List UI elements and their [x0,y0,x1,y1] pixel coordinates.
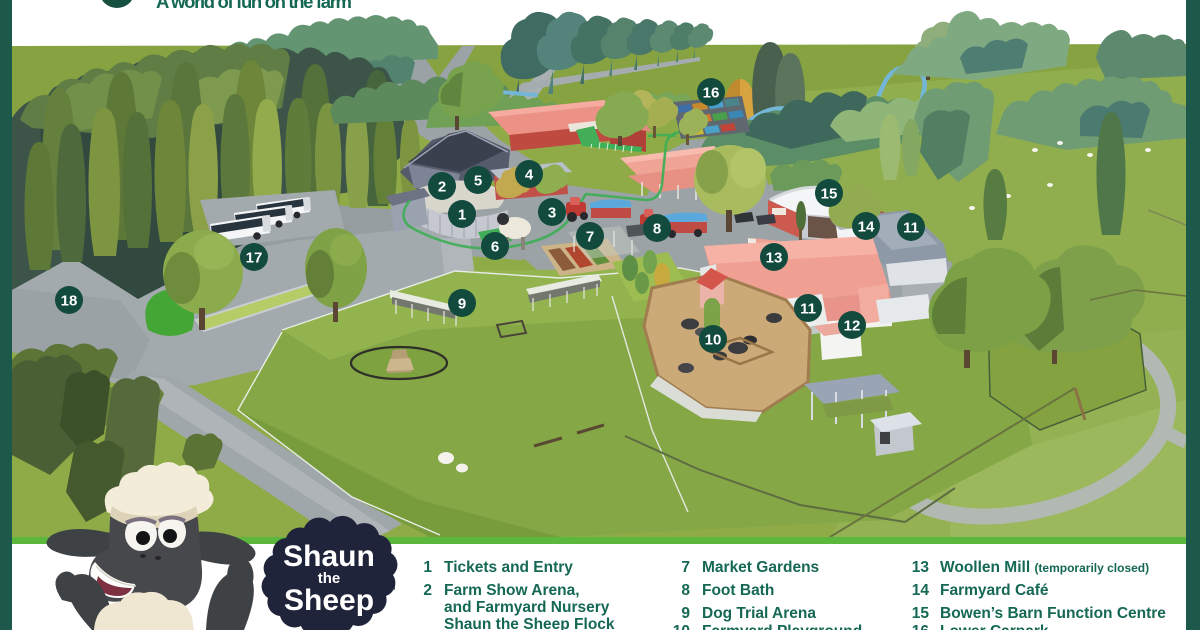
svg-text:9: 9 [681,605,690,622]
svg-text:Market Gardens: Market Gardens [702,559,819,576]
svg-text:A world of fun on the farm: A world of fun on the farm [156,0,352,12]
svg-text:Foot Bath: Foot Bath [702,582,774,599]
svg-text:8: 8 [653,221,661,238]
svg-text:10: 10 [673,623,690,630]
svg-text:10: 10 [705,332,722,349]
svg-text:Sheep: Sheep [284,584,374,617]
svg-text:Shaun the Sheep Flock: Shaun the Sheep Flock [444,616,615,630]
svg-text:9: 9 [458,296,466,313]
svg-text:13: 13 [766,250,783,267]
svg-text:11: 11 [903,220,919,237]
svg-text:2: 2 [438,179,446,196]
svg-text:Farmyard Playground: Farmyard Playground [702,623,862,630]
svg-text:TM: TM [384,583,396,592]
svg-text:Dog Trial Arena: Dog Trial Arena [702,605,816,622]
svg-text:1: 1 [458,207,466,224]
svg-text:3: 3 [548,205,556,222]
svg-text:14: 14 [912,582,930,599]
svg-text:7: 7 [586,229,594,246]
svg-text:Farmyard Café: Farmyard Café [940,582,1049,599]
svg-text:7: 7 [681,559,690,576]
svg-text:16: 16 [703,85,720,102]
svg-text:8: 8 [681,582,690,599]
svg-text:Bowen’s Barn Function Centre: Bowen’s Barn Function Centre [940,605,1166,622]
svg-text:13: 13 [912,559,930,576]
svg-text:1: 1 [423,559,432,576]
svg-text:15: 15 [912,605,930,622]
svg-text:18: 18 [61,293,78,310]
svg-text:15: 15 [821,186,838,203]
svg-text:Lower Carpark: Lower Carpark [940,623,1049,630]
svg-text:and Farmyard Nursery: and Farmyard Nursery [444,599,610,616]
svg-text:Tickets and Entry: Tickets and Entry [444,559,573,576]
svg-text:Shaun: Shaun [283,540,375,573]
svg-text:6: 6 [491,239,499,256]
svg-text:Farm Show Arena,: Farm Show Arena, [444,582,580,599]
svg-text:4: 4 [525,167,534,184]
svg-text:12: 12 [844,318,861,335]
svg-text:17: 17 [246,250,263,267]
svg-text:14: 14 [858,219,875,236]
svg-text:Woollen Mill (temporarily clos: Woollen Mill (temporarily closed) [940,559,1149,576]
svg-text:5: 5 [474,173,482,190]
svg-text:11: 11 [800,301,816,318]
svg-text:16: 16 [912,623,930,630]
svg-text:2: 2 [423,582,432,599]
